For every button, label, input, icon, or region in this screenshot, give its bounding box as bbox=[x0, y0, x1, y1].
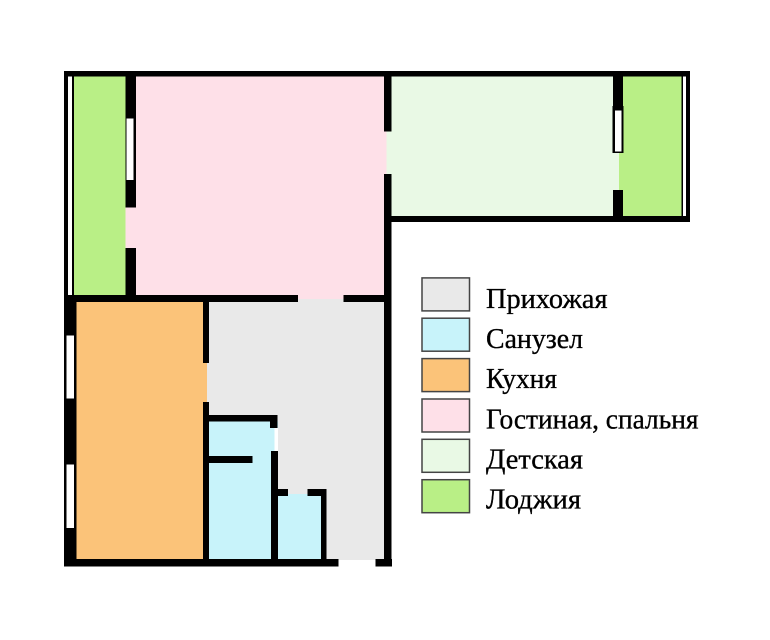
svg-text:Прихожая: Прихожая bbox=[486, 283, 608, 315]
svg-text:Кухня: Кухня bbox=[486, 363, 557, 395]
svg-text:Гостиная, спальня: Гостиная, спальня bbox=[486, 403, 699, 435]
svg-text:Детская: Детская bbox=[486, 443, 583, 475]
svg-text:Санузел: Санузел bbox=[486, 323, 583, 355]
svg-text:Лоджия: Лоджия bbox=[486, 484, 581, 516]
